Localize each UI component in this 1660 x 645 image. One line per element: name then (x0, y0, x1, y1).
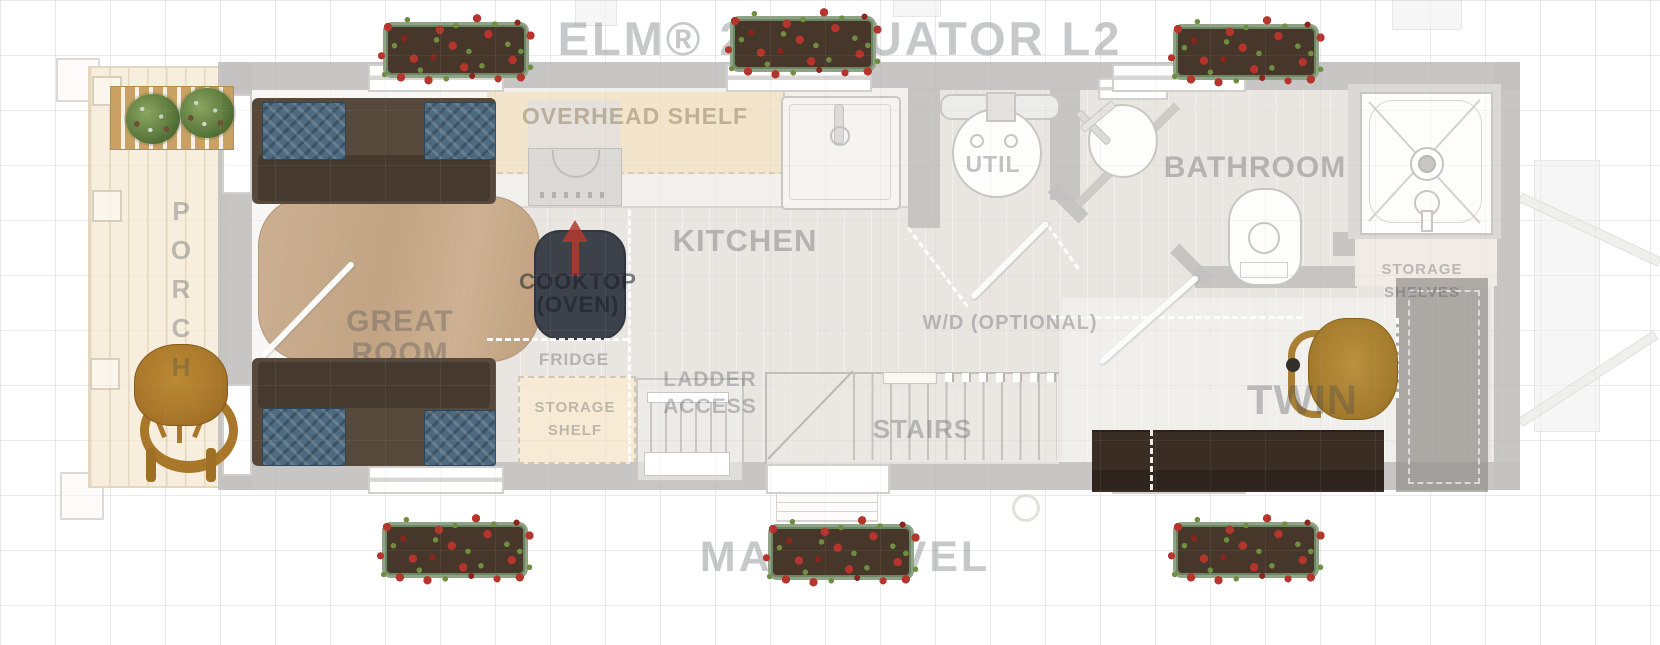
porch-post (92, 190, 122, 222)
feature-label-ladder-access: LADDER ACCESS (630, 366, 790, 421)
cooktop-line2: (OVEN) (537, 292, 620, 317)
room-label-bathroom: BATHROOM (1150, 152, 1360, 184)
flower-planter (383, 22, 529, 78)
potted-plant (180, 88, 234, 138)
feature-label-storage-shelf: STORAGE SHELF (520, 397, 630, 442)
potted-plant (126, 94, 180, 144)
kitchen-faucet-handle (830, 126, 850, 146)
room-label-util: UTIL (945, 152, 1041, 176)
cooktop-line1: COOKTOP (519, 269, 637, 294)
range-knobs (540, 192, 608, 198)
feature-label-cooktop-oven: COOKTOP (OVEN) (498, 270, 658, 316)
porch-chair-leg (206, 448, 216, 482)
util-junction-box (986, 92, 1016, 122)
entry-door (766, 464, 890, 494)
sofa-cushion (262, 102, 346, 160)
ladder-bottom-step (644, 452, 730, 476)
flower-planter (382, 522, 528, 578)
feature-label-overhead-shelf: OVERHEAD SHELF (500, 104, 770, 128)
great-room-line1: GREAT (346, 305, 454, 338)
loft-edge-dashed (487, 338, 628, 341)
stairs-landing-strip (883, 372, 937, 384)
faint-loft-outline (1392, 0, 1462, 30)
water-heater-valve (970, 134, 984, 148)
water-heater-valve (1004, 134, 1018, 148)
ladder-line2: ACCESS (663, 395, 757, 418)
flower-planter (730, 16, 876, 72)
feature-label-storage-shelves: STORAGE SHELVES (1372, 258, 1472, 305)
room-label-stairs: STAIRS (830, 416, 1015, 443)
flower-planter (1173, 24, 1319, 80)
shower-handle-stem (1421, 210, 1433, 232)
flower-planter (768, 524, 914, 580)
sofa-cushion (424, 102, 496, 160)
feature-label-wd-optional: W/D (OPTIONAL) (900, 313, 1120, 334)
storage-shelves-line2: SHELVES (1384, 284, 1460, 301)
stabilizer-wheel (1012, 494, 1040, 522)
toilet-base (1240, 262, 1288, 278)
sofa-cushion (262, 408, 346, 466)
util-wall-left (908, 88, 940, 228)
stairs-balusters (945, 373, 1057, 382)
toilet-flush (1248, 222, 1280, 254)
flower-planter (1173, 522, 1319, 578)
great-room-line2: ROOM (351, 337, 448, 370)
window (368, 466, 504, 494)
room-label-kitchen: KITCHEN (640, 225, 850, 258)
loft-edge-dashed (1150, 430, 1153, 490)
cooktop-arrow-head (562, 220, 588, 242)
room-label-great-room: GREAT ROOM (300, 306, 500, 369)
storage-shelf-line1: STORAGE (535, 399, 616, 416)
sofa-cushion (424, 410, 496, 466)
shower-drain-center (1418, 155, 1436, 173)
storage-shelves-line1: STORAGE (1382, 261, 1463, 278)
storage-shelf-line2: SHELF (548, 422, 602, 439)
desk-lower-edge (1092, 470, 1384, 490)
sofa-top-seat (258, 155, 490, 201)
ladder-line1: LADDER (663, 368, 757, 391)
feature-label-fridge: FRIDGE (524, 351, 624, 369)
porch-chair-leg (146, 448, 156, 482)
desk-chair-hub (1286, 358, 1300, 372)
room-label-porch: PORCH (158, 196, 194, 386)
room-label-twin: TWIN (1210, 378, 1395, 422)
porch-post (90, 358, 120, 390)
floor-plan-canvas: ELM® 26 EQUATOR L2 MAIN LEVEL (0, 0, 1660, 645)
storage-shelves-inner (1408, 290, 1480, 484)
